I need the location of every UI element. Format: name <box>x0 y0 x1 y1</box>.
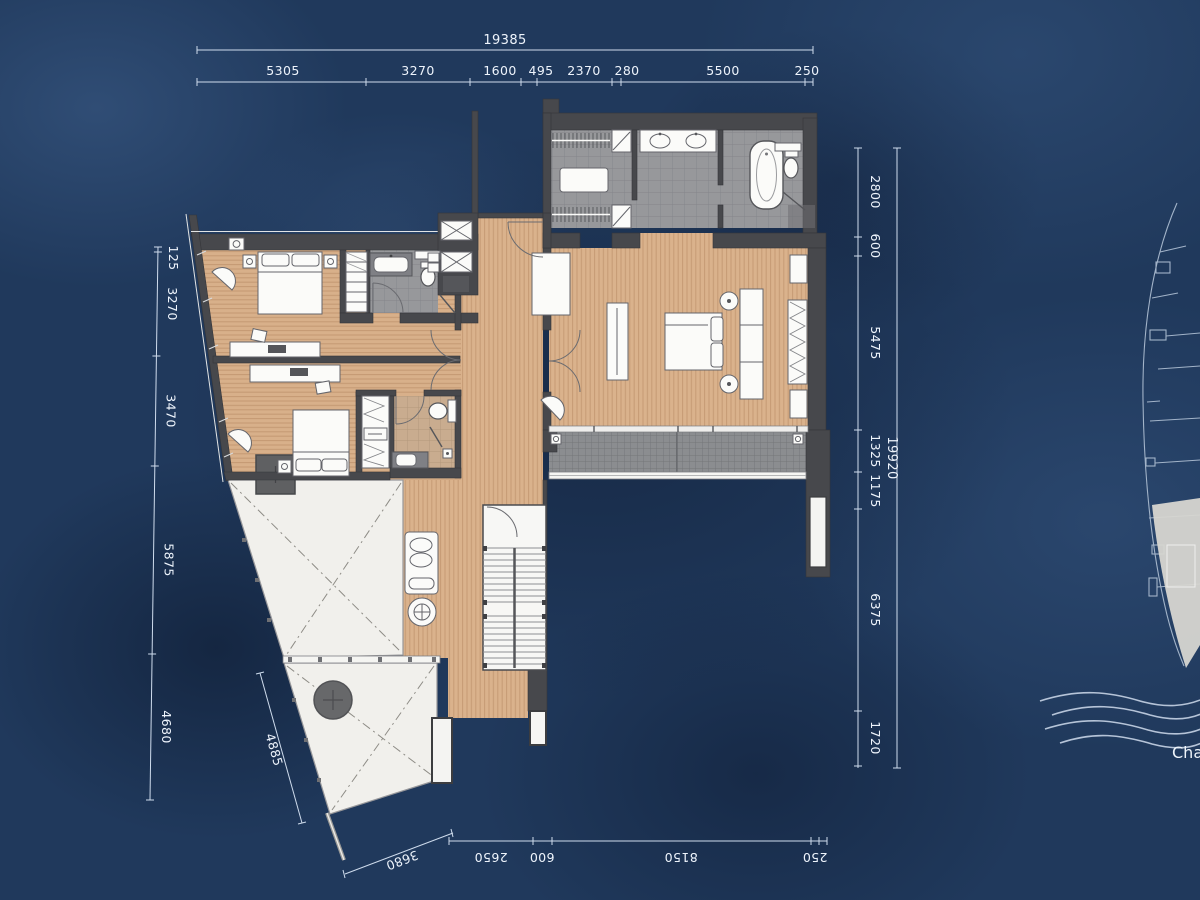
dim-left-seg3: 3470 <box>164 394 179 427</box>
hall-cabinet <box>532 253 570 315</box>
terrace-upper <box>228 480 403 658</box>
staircase <box>483 505 546 670</box>
dim-top-seg2: 3270 <box>401 63 434 78</box>
terrace-circle-table <box>314 681 352 719</box>
dim-right-seg2: 600 <box>868 233 883 258</box>
dim-top-seg8: 250 <box>794 63 819 78</box>
dim-top-seg5: 2370 <box>567 63 600 78</box>
entry-keypad <box>229 238 244 250</box>
terrace-lower <box>283 656 452 860</box>
dim-bottom-seg3: 8150 <box>664 850 697 865</box>
floor-plan-drawing: Cha <box>0 0 1200 900</box>
dim-diag-4885: 4885 <box>263 732 287 768</box>
dim-left-seg5: 4680 <box>159 710 174 743</box>
dim-top-overall: 19385 <box>483 33 526 48</box>
dim-left-seg4: 5875 <box>162 543 177 576</box>
toilet-master <box>784 158 798 178</box>
headboard-unit <box>740 289 763 399</box>
dim-top-seg1: 5305 <box>266 63 299 78</box>
dim-right-overall: 19920 <box>884 436 899 479</box>
water-background: Cha <box>0 0 1200 900</box>
dim-top-seg7: 5500 <box>706 63 739 78</box>
dim-left-seg2: 3270 <box>165 287 180 320</box>
dim-right-seg4: 1325 <box>868 434 883 467</box>
adjacent-terrace-wedge <box>1152 498 1200 668</box>
terrace-column <box>432 718 452 783</box>
dim-top-seg3: 1600 <box>483 63 516 78</box>
river-wave-icon <box>1040 693 1200 748</box>
annex-doorway-floor <box>640 233 713 248</box>
toilet-2 <box>429 403 447 419</box>
deck-lounge <box>405 532 438 626</box>
dim-right-seg6: 6375 <box>868 593 883 626</box>
dim-top-seg4: 495 <box>528 63 553 78</box>
dim-right-seg5: 1175 <box>868 474 883 507</box>
dim-top-seg6: 280 <box>614 63 639 78</box>
dim-right-seg7: 1720 <box>868 721 883 754</box>
terrace-railing <box>283 656 440 663</box>
dim-bottom-seg1: 2650 <box>474 850 507 865</box>
double-vanity <box>640 130 716 152</box>
dim-bottom-seg2: 600 <box>529 850 554 865</box>
river-label: Cha <box>1172 743 1200 762</box>
dim-left-seg1: 125 <box>166 245 181 270</box>
closet-island <box>560 168 608 192</box>
dim-diag-3680: 3680 <box>384 847 421 873</box>
bath-shelf <box>775 143 801 151</box>
dim-right-seg1: 2800 <box>868 175 883 208</box>
dim-bottom-seg4: 250 <box>802 850 827 865</box>
dim-right-seg3: 5475 <box>868 326 883 359</box>
shower-bench <box>443 276 469 292</box>
